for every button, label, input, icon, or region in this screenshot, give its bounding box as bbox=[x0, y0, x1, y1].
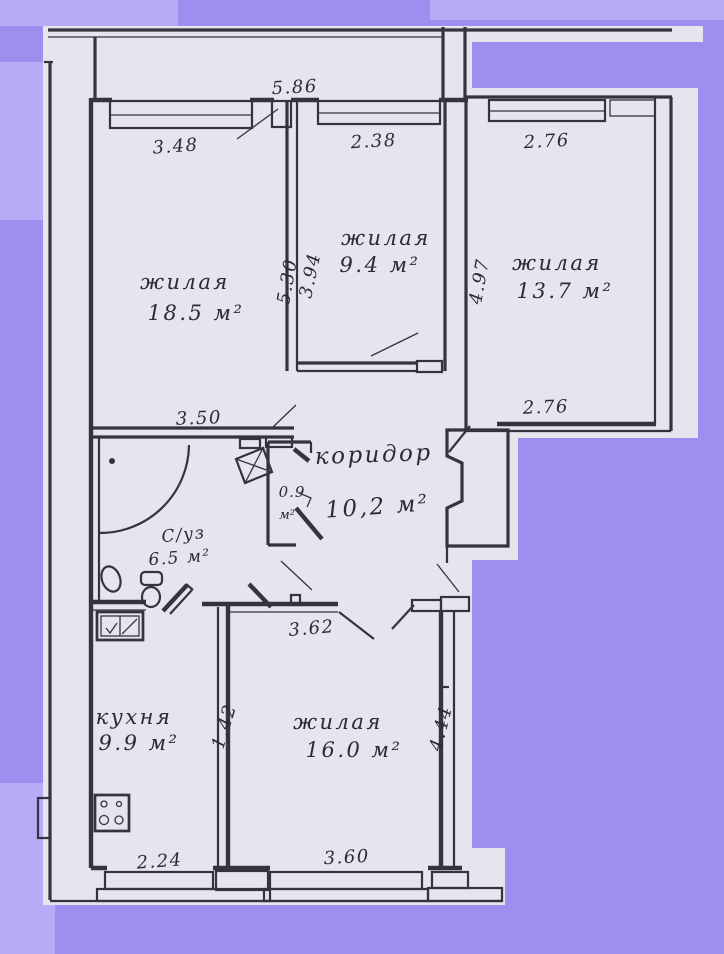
dimension-label: 5.86 bbox=[271, 76, 318, 99]
room-area: м² bbox=[279, 508, 295, 523]
background-light-patch bbox=[0, 62, 43, 220]
dimension-label: 3.48 bbox=[152, 134, 199, 158]
room-name: жилая bbox=[140, 270, 230, 294]
background-light-patch bbox=[430, 0, 724, 20]
room-area: 9.9 м² bbox=[99, 731, 180, 755]
dimension-label: 3.62 bbox=[288, 616, 336, 641]
room-name: коридор bbox=[314, 440, 433, 470]
room-area: 9.4 м² bbox=[340, 253, 421, 277]
room-area: 16.0 м² bbox=[306, 738, 403, 762]
dimension-label: 2.38 bbox=[349, 130, 397, 153]
room-area: 13.7 м² bbox=[517, 279, 614, 303]
paper-region bbox=[425, 848, 505, 905]
room-name: 0.9 bbox=[279, 483, 306, 501]
room-name: жилая bbox=[293, 710, 383, 734]
dimension-label: 2.76 bbox=[522, 130, 570, 153]
dimension-label: 2.24 bbox=[135, 849, 183, 873]
room-name: жилая bbox=[341, 226, 431, 250]
dimension-label: 3.60 bbox=[323, 846, 370, 869]
dimension-label: 2.76 bbox=[521, 396, 569, 419]
room-name: жилая bbox=[512, 251, 602, 275]
floor-plan-scan: 5.86 3.48 2.38 2.76 5.30 3.94 4.97 3.50 … bbox=[0, 0, 724, 954]
background-light-patch bbox=[0, 0, 178, 26]
room-name: кухня bbox=[96, 705, 173, 729]
drain-dot bbox=[109, 458, 115, 464]
room-area: 18.5 м² bbox=[148, 301, 245, 325]
dimension-label: 3.50 bbox=[175, 407, 222, 430]
